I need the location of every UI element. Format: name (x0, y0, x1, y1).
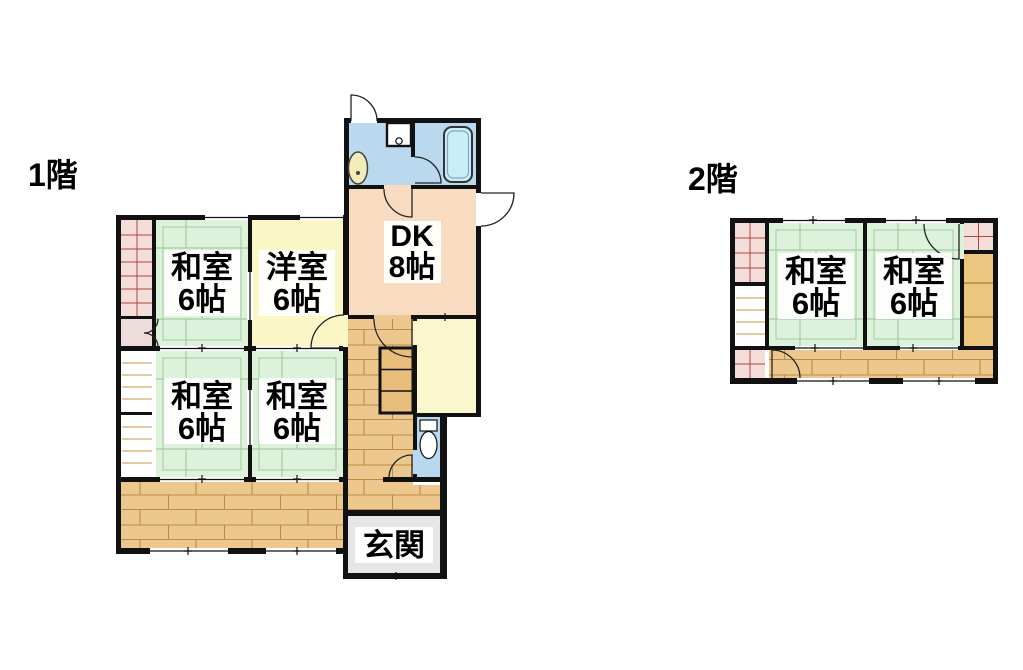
toilet-icon (420, 420, 437, 459)
floor1-label: 1階 (28, 157, 78, 193)
entrance-step-floor (348, 485, 440, 510)
room-label-washitsu-1f-sw: 和室 6帖 (164, 378, 240, 446)
room-label-washitsu-1f-nw: 和室 6帖 (164, 250, 240, 317)
svg-text:玄関: 玄関 (363, 528, 425, 563)
svg-text:6帖: 6帖 (273, 411, 321, 446)
svg-text:6帖: 6帖 (273, 282, 321, 317)
door-opening-2f (960, 224, 964, 259)
floor1-plan: 1階 和室 6帖 洋室 6帖 DK 8帖 和室 6帖 和室 6帖 玄関 (28, 95, 514, 579)
svg-text:洋室: 洋室 (266, 250, 328, 285)
room-label-youshitsu-1f: 洋室 6帖 (259, 250, 335, 317)
stairs-2f (735, 286, 765, 346)
floor-plan-page: 1階 和室 6帖 洋室 6帖 DK 8帖 和室 6帖 和室 6帖 玄関 (0, 0, 1023, 670)
storage-strip-2f (964, 254, 993, 346)
floor2-plan: 2階 和室 6帖 和室 6帖 (688, 161, 998, 384)
svg-text:6帖: 6帖 (792, 286, 840, 321)
svg-text:和室: 和室 (785, 254, 847, 289)
room-label-dk-1f: DK 8帖 (384, 220, 441, 284)
svg-text:8帖: 8帖 (389, 251, 436, 284)
oshiire-1f-b (121, 415, 152, 477)
hallway-2f (769, 350, 993, 378)
svg-text:6帖: 6帖 (178, 411, 226, 446)
bathtub-icon (444, 127, 472, 182)
washing-machine-icon (387, 123, 411, 146)
sink-icon (349, 152, 368, 184)
small-room-1f (417, 319, 476, 413)
stairs-1f (380, 348, 413, 413)
room-label-washitsu-2f-e: 和室 6帖 (876, 253, 952, 321)
svg-text:6帖: 6帖 (178, 282, 226, 317)
floor-plan-drawing: 1階 和室 6帖 洋室 6帖 DK 8帖 和室 6帖 和室 6帖 玄関 (0, 0, 1023, 670)
svg-text:和室: 和室 (171, 250, 233, 285)
svg-text:DK: DK (390, 220, 434, 253)
svg-text:和室: 和室 (266, 379, 328, 414)
oshiire-1f-a (121, 351, 152, 412)
svg-text:6帖: 6帖 (890, 286, 938, 321)
svg-text:和室: 和室 (171, 379, 233, 414)
room-label-washitsu-1f-s: 和室 6帖 (259, 378, 335, 446)
floor2-label: 2階 (688, 161, 738, 197)
svg-text:和室: 和室 (883, 254, 945, 289)
room-label-genkan-1f: 玄関 (355, 527, 433, 563)
veranda-1f (121, 482, 345, 548)
room-label-washitsu-2f-w: 和室 6帖 (778, 253, 854, 321)
